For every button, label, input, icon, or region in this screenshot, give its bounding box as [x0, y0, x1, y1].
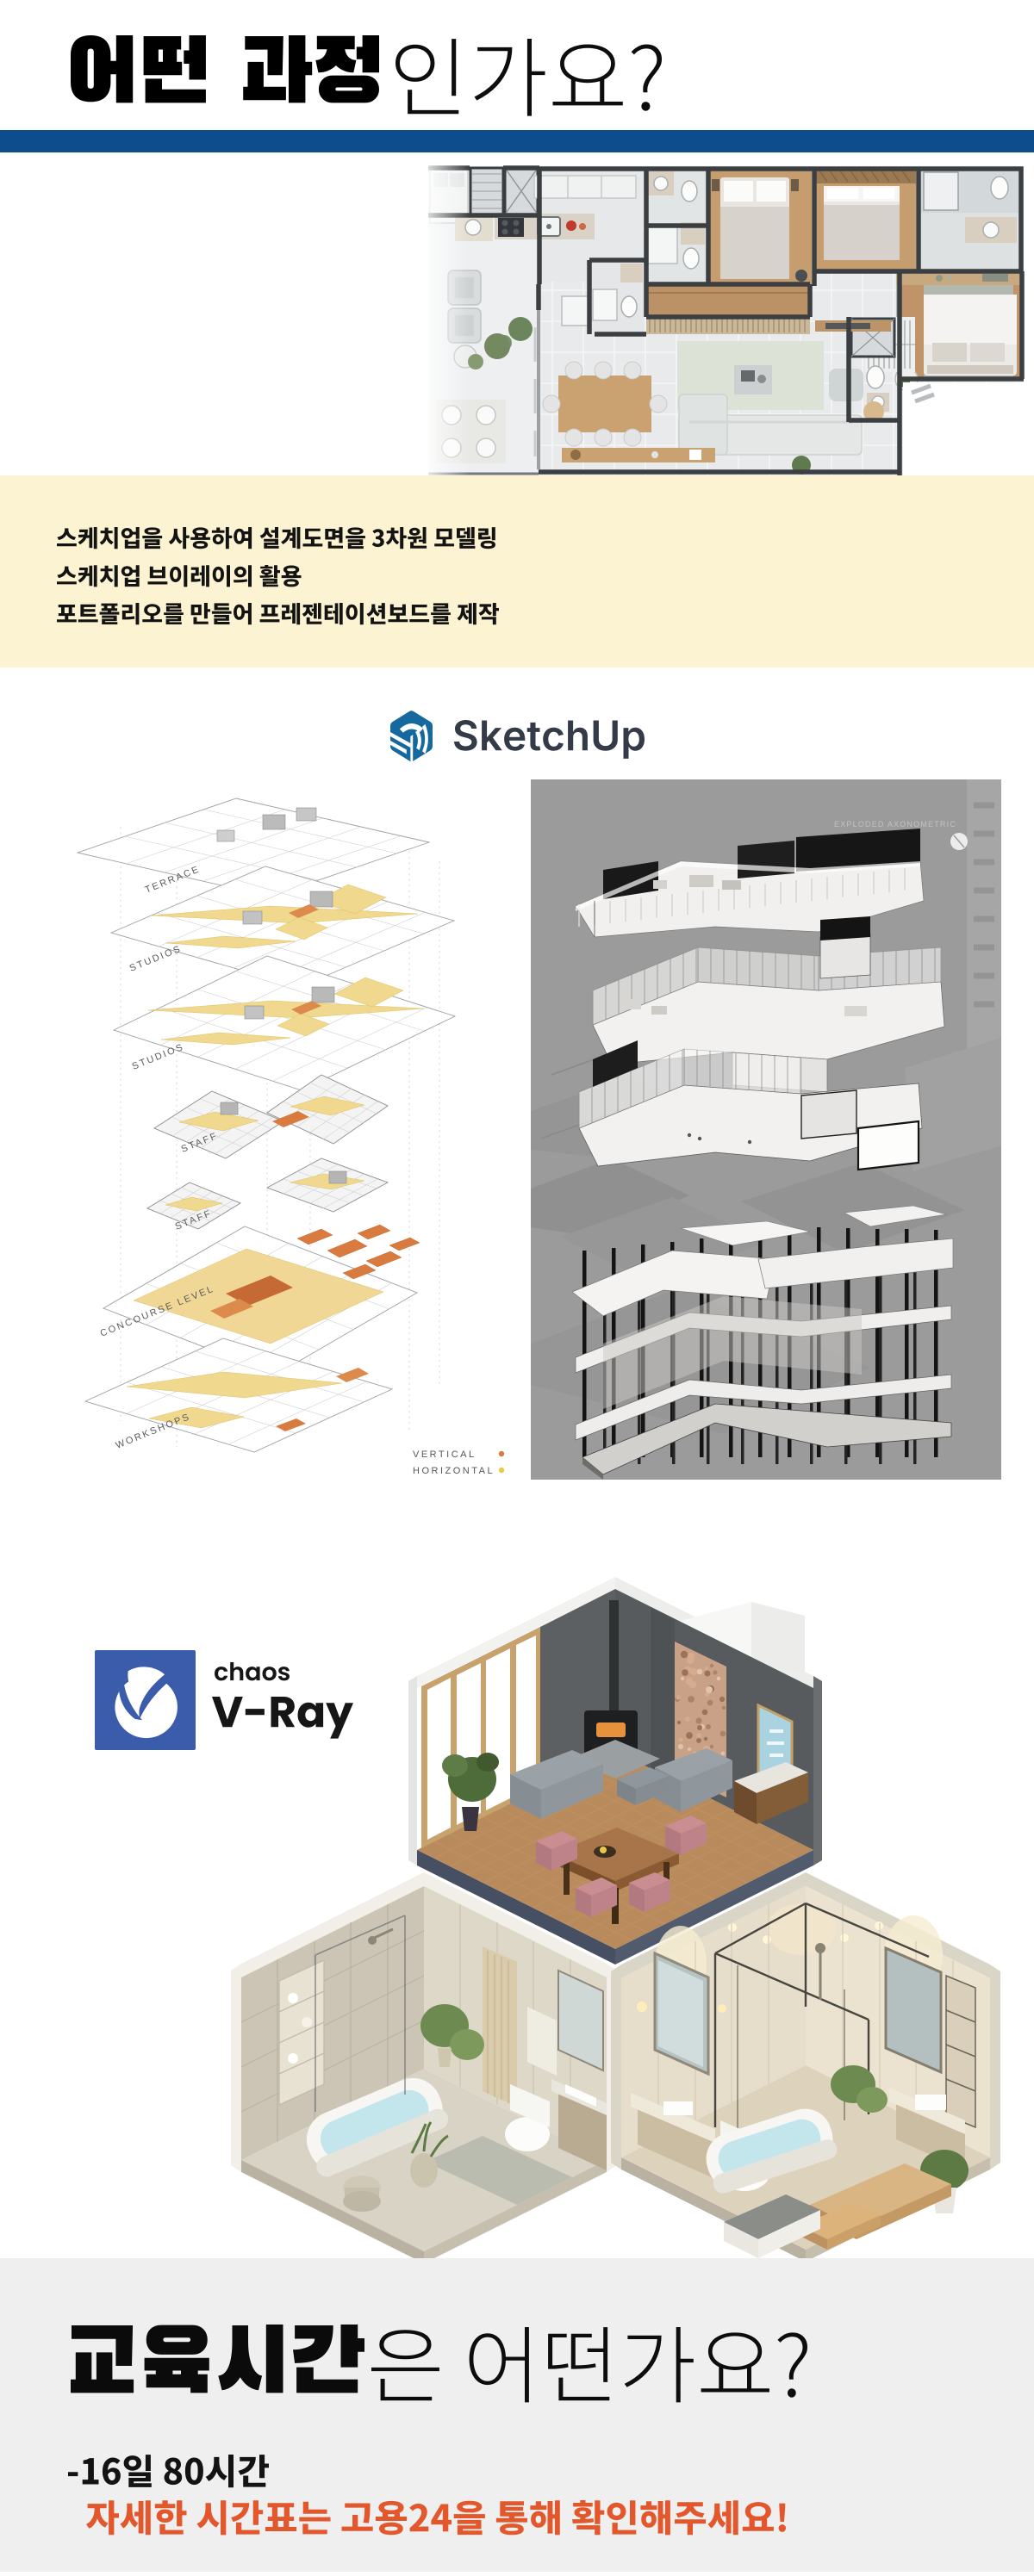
svg-text:HORIZONTAL: HORIZONTAL [413, 1466, 495, 1476]
svg-text:EXPLODED AXONOMETRIC: EXPLODED AXONOMETRIC [834, 820, 956, 829]
svg-text:VERTICAL: VERTICAL [413, 1449, 477, 1460]
